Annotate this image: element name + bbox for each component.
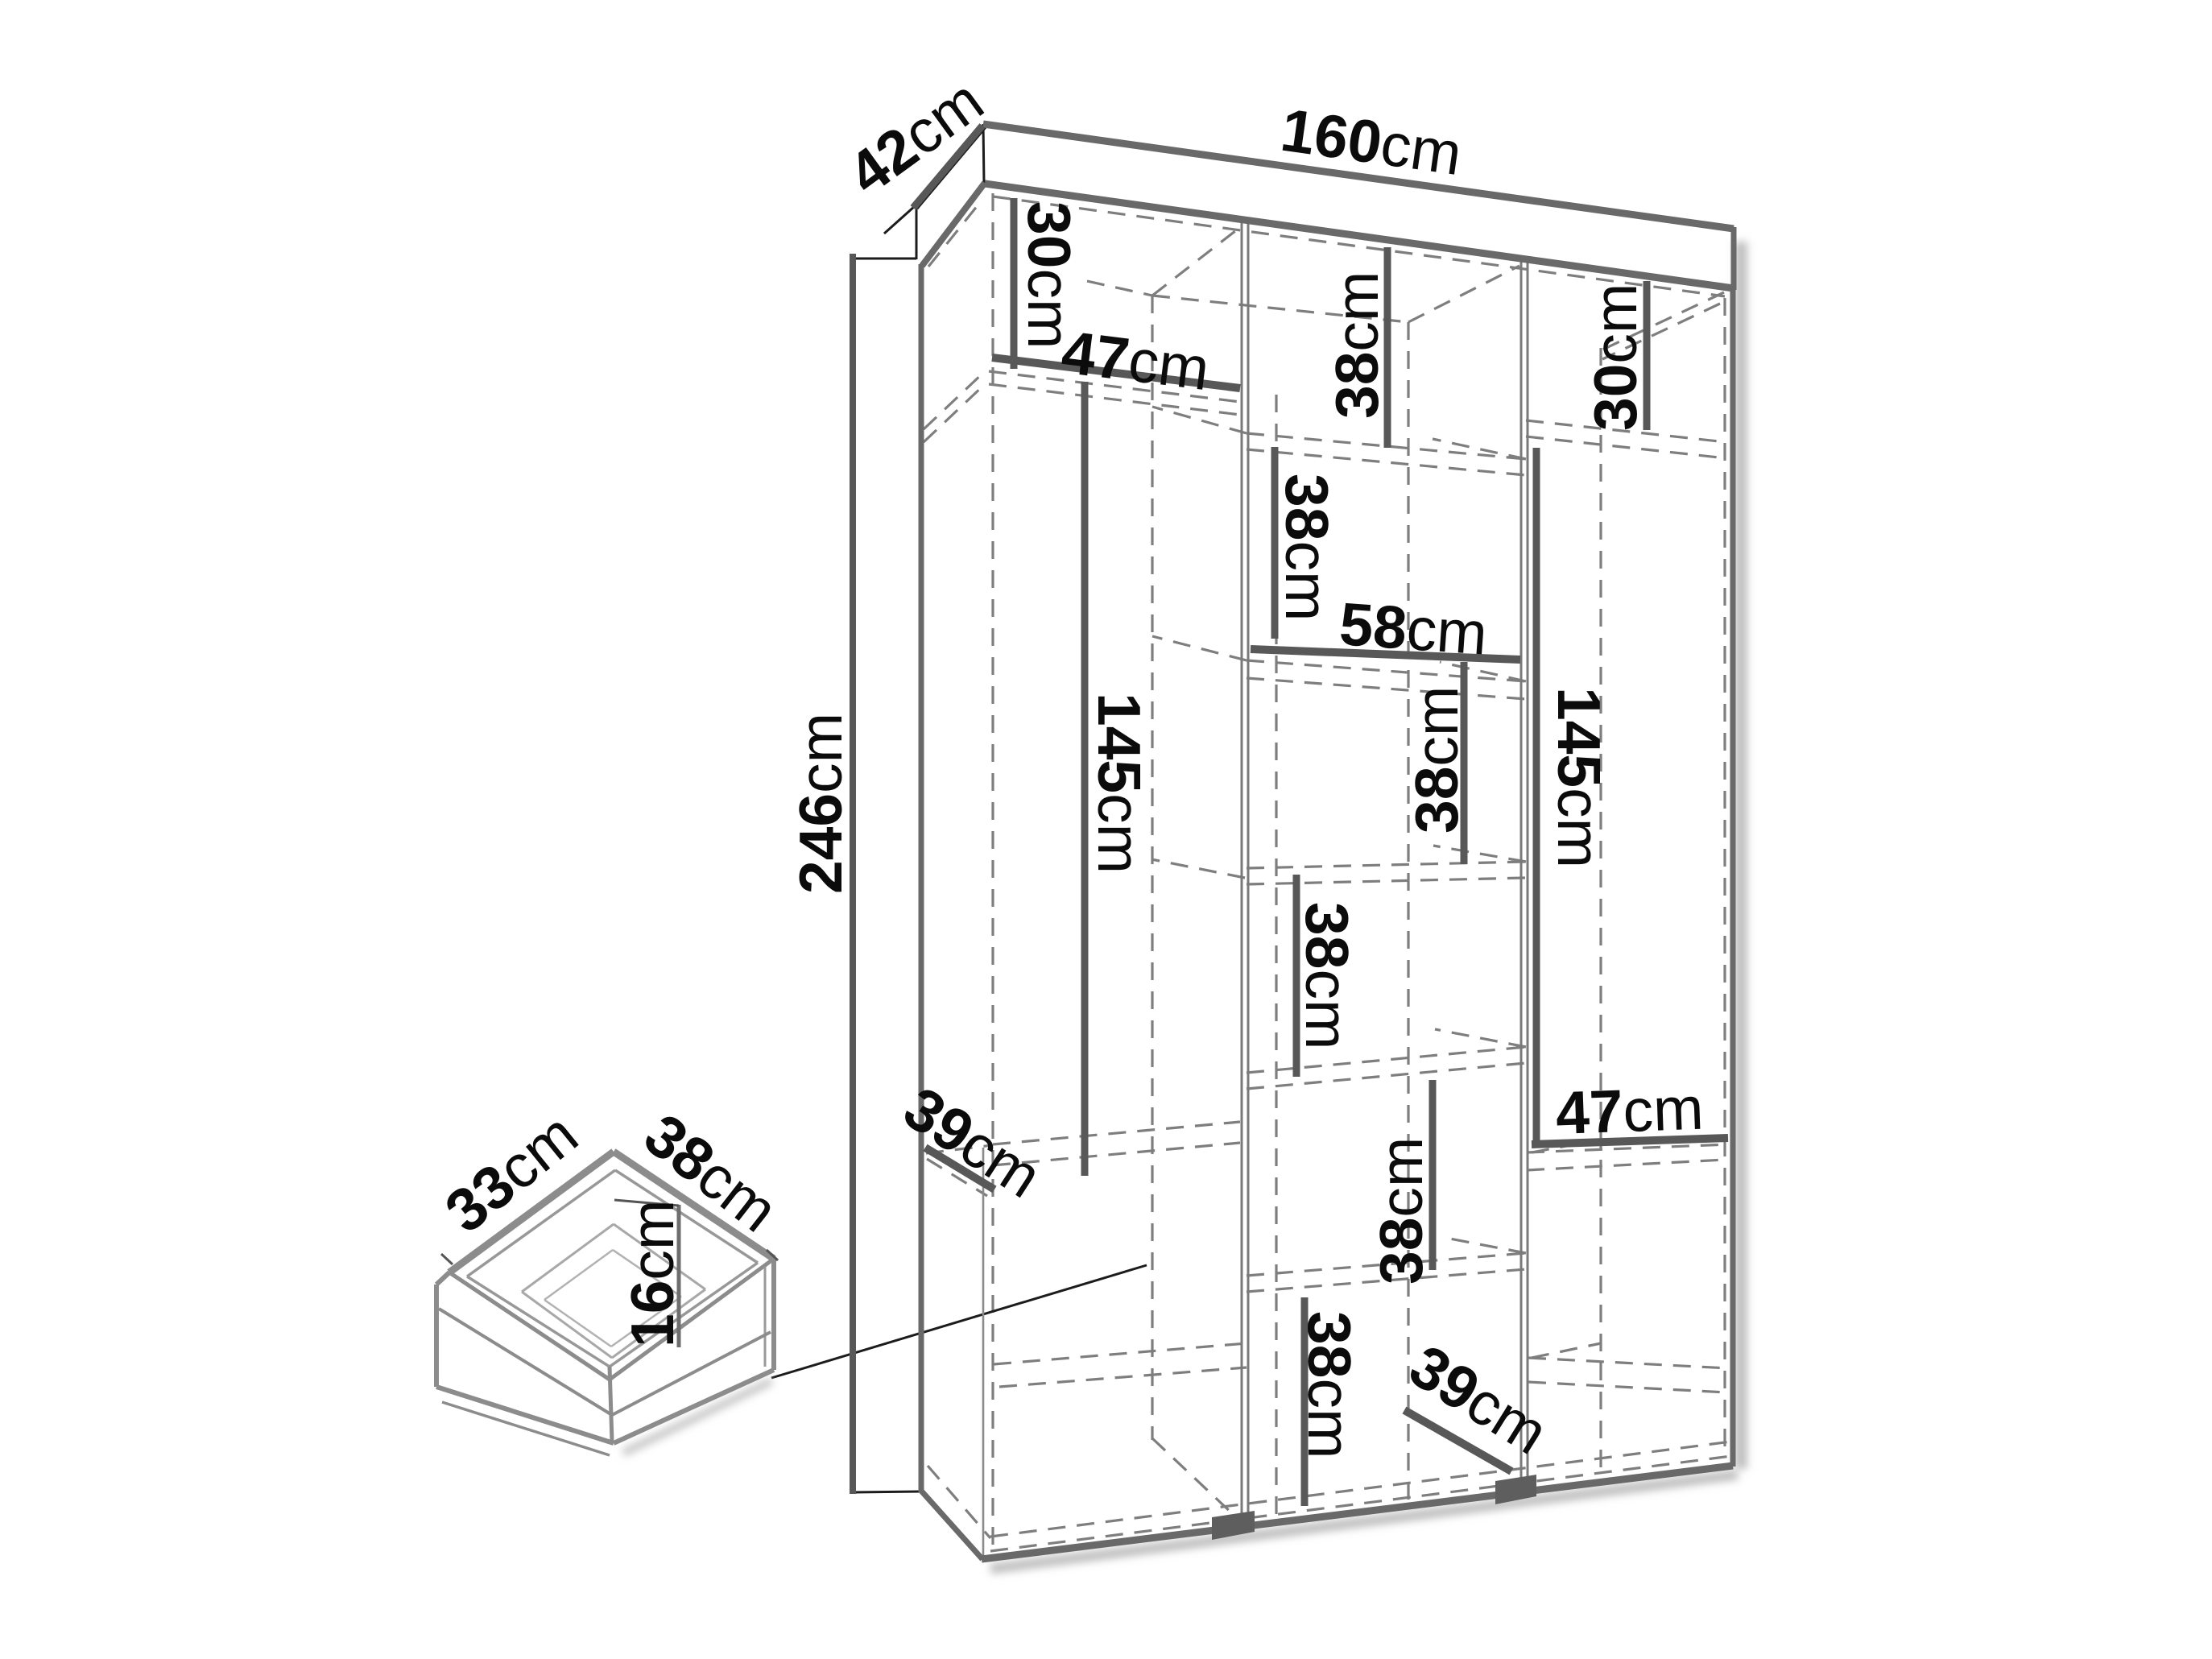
svg-text:38cm: 38cm — [1403, 686, 1470, 834]
svg-text:145cm: 145cm — [1085, 693, 1153, 874]
svg-text:16cm: 16cm — [618, 1200, 686, 1347]
svg-text:38cm: 38cm — [1273, 474, 1341, 621]
svg-text:246cm: 246cm — [787, 713, 854, 894]
svg-text:30cm: 30cm — [1581, 283, 1649, 431]
svg-text:145cm: 145cm — [1545, 687, 1613, 868]
svg-text:38cm: 38cm — [1323, 271, 1391, 419]
svg-text:47cm: 47cm — [1555, 1074, 1705, 1147]
svg-text:38cm: 38cm — [1296, 1311, 1363, 1458]
svg-text:38cm: 38cm — [1367, 1137, 1435, 1285]
svg-text:58cm: 58cm — [1338, 590, 1490, 668]
svg-text:38cm: 38cm — [1293, 902, 1361, 1049]
